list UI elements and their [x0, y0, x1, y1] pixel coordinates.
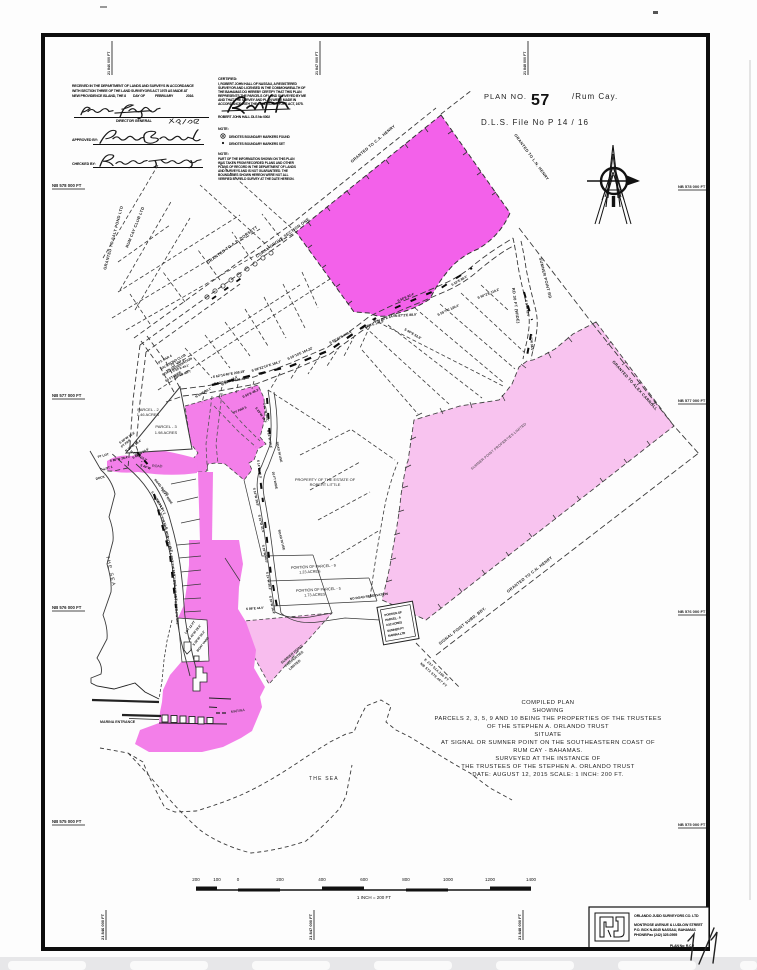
svg-text:21 847 000 FT: 21 847 000 FT	[315, 51, 319, 75]
svg-text:21 846 000 FT: 21 846 000 FT	[107, 51, 111, 75]
svg-text:800: 800	[402, 877, 410, 882]
svg-text:NB 576 000 FT: NB 576 000 FT	[52, 605, 82, 610]
svg-text:1000: 1000	[443, 877, 454, 882]
svg-text:1400: 1400	[526, 877, 537, 882]
svg-text:21 848 000 FT: 21 848 000 FT	[517, 913, 522, 940]
svg-text:NOTE:: NOTE:	[218, 152, 229, 156]
svg-text:PARCEL - 3: PARCEL - 3	[155, 424, 177, 429]
svg-text:NEW PROVIDENCE ISLAND, THE 8: NEW PROVIDENCE ISLAND, THE 8	[72, 94, 126, 98]
svg-text:ORLANDO JUDD SURVEYORS CO. LTD: ORLANDO JUDD SURVEYORS CO. LTD	[634, 914, 699, 918]
svg-text:MARINA ENTRANCE: MARINA ENTRANCE	[100, 720, 136, 724]
svg-text:SURVEYED AT THE INSTANCE O: SURVEYED AT THE INSTANCE OF	[495, 756, 600, 762]
svg-text:SHOWING: SHOWING	[532, 708, 564, 714]
svg-text:RECEIVED IN THE DEPARTMENT OF: RECEIVED IN THE DEPARTMENT OF LANDS AND …	[72, 84, 194, 88]
svg-text:NOTE:: NOTE:	[218, 127, 229, 131]
svg-text:1 INCH = 200 FT: 1 INCH = 200 FT	[357, 895, 391, 900]
svg-text:P.O. BOX N-8645 NASSAU, BAHAMA: P.O. BOX N-8645 NASSAU, BAHAMAS	[634, 928, 696, 932]
svg-text:NB 575 000 FT: NB 575 000 FT	[52, 819, 82, 824]
svg-text:THE TRUSTEES OF THE STEPHE: THE TRUSTEES OF THE STEPHEN A. ORLANDO T…	[461, 764, 634, 770]
svg-text:200: 200	[276, 877, 284, 882]
svg-text:THE SEA: THE SEA	[309, 776, 339, 782]
svg-text:ROBERT LITTLE: ROBERT LITTLE	[310, 482, 341, 487]
svg-text:AT SIGNAL OR SUMNER POINT: AT SIGNAL OR SUMNER POINT ON THE SOUTHEA…	[441, 740, 655, 746]
svg-text:NB 577 000 FT: NB 577 000 FT	[678, 398, 706, 403]
svg-text:DATE: AUGUST 12, 2015 SCA: DATE: AUGUST 12, 2015 SCALE: 1 INCH: 200…	[472, 772, 623, 778]
svg-text:NB 576 000 FT: NB 576 000 FT	[678, 609, 706, 614]
svg-text:CHECKED BY:: CHECKED BY:	[72, 162, 96, 166]
svg-text:NB 578 000 FT: NB 578 000 FT	[678, 184, 706, 189]
svg-text:DIRECTOR GENERAL: DIRECTOR GENERAL	[116, 119, 153, 123]
svg-text:100: 100	[213, 877, 221, 882]
svg-text:ROAD: ROAD	[152, 464, 163, 468]
svg-text:2016.: 2016.	[186, 94, 194, 98]
svg-text:PARCELS 2, 3, 5, 9 AND 1: PARCELS 2, 3, 5, 9 AND 10 BEING THE PROP…	[434, 716, 661, 722]
svg-text:WITH SECTION THREE OF THE LAND: WITH SECTION THREE OF THE LAND SURVEYORS…	[72, 89, 189, 93]
svg-text:RUM CAY - BAHAMAS.: RUM CAY - BAHAMAS.	[513, 748, 582, 754]
svg-text:400: 400	[318, 877, 326, 882]
svg-text:600: 600	[360, 877, 368, 882]
svg-text:APPROVED BY:: APPROVED BY:	[72, 138, 98, 142]
svg-text:VERIFIED BY FIELD SURVEY AT TH: VERIFIED BY FIELD SURVEY AT THE DATE HER…	[218, 177, 295, 181]
svg-text:PLAN NO.: PLAN NO.	[484, 92, 527, 101]
svg-text:CERTIFIED:: CERTIFIED:	[218, 77, 237, 81]
svg-text:PHONE/Fax (242) 325-0595: PHONE/Fax (242) 325-0595	[634, 933, 677, 937]
svg-text:ROBERT JOHN HALL DLS No 000: ROBERT JOHN HALL DLS No 0002	[218, 115, 270, 119]
svg-text:/Rum Cay.: /Rum Cay.	[572, 92, 618, 101]
svg-text:DENOTES BOUNDARY MARKERS FOUND: DENOTES BOUNDARY MARKERS FOUND	[229, 135, 291, 139]
svg-text:COMPILED PLAN: COMPILED PLAN	[522, 700, 575, 706]
svg-text:SITUATE: SITUATE	[534, 732, 561, 738]
svg-text:NB 578 000 FT: NB 578 000 FT	[52, 183, 82, 188]
svg-text:21 847 000 FT: 21 847 000 FT	[308, 913, 313, 940]
svg-text:21 846 000 FT: 21 846 000 FT	[100, 913, 105, 940]
svg-text:D.L.S. File No P 14 / 16: D.L.S. File No P 14 / 16	[481, 118, 589, 127]
svg-text:200: 200	[192, 877, 200, 882]
svg-text:57: 57	[531, 92, 550, 109]
svg-text:21 848 000 FT: 21 848 000 FT	[523, 51, 527, 75]
svg-text:DENOTES BOUNDARY MARKERS SET: DENOTES BOUNDARY MARKERS SET	[229, 142, 285, 146]
svg-text:OF THE STEPHEN A. ORLANDO: OF THE STEPHEN A. ORLANDO TRUST	[487, 724, 609, 730]
svg-text:MONTROSE AVENUE & LUDLOW STREE: MONTROSE AVENUE & LUDLOW STREET	[634, 923, 704, 927]
svg-text:NB 577 000 FT: NB 577 000 FT	[52, 393, 82, 398]
svg-text:1.46 ACRES: 1.46 ACRES	[137, 412, 160, 417]
svg-text:1.98 ACRES: 1.98 ACRES	[155, 430, 178, 435]
svg-text:NB 575 000 FT: NB 575 000 FT	[678, 822, 706, 827]
svg-text:DAY OF: DAY OF	[133, 94, 146, 98]
svg-text:1200: 1200	[485, 877, 496, 882]
svg-text:FEBRUARY: FEBRUARY	[155, 94, 174, 98]
